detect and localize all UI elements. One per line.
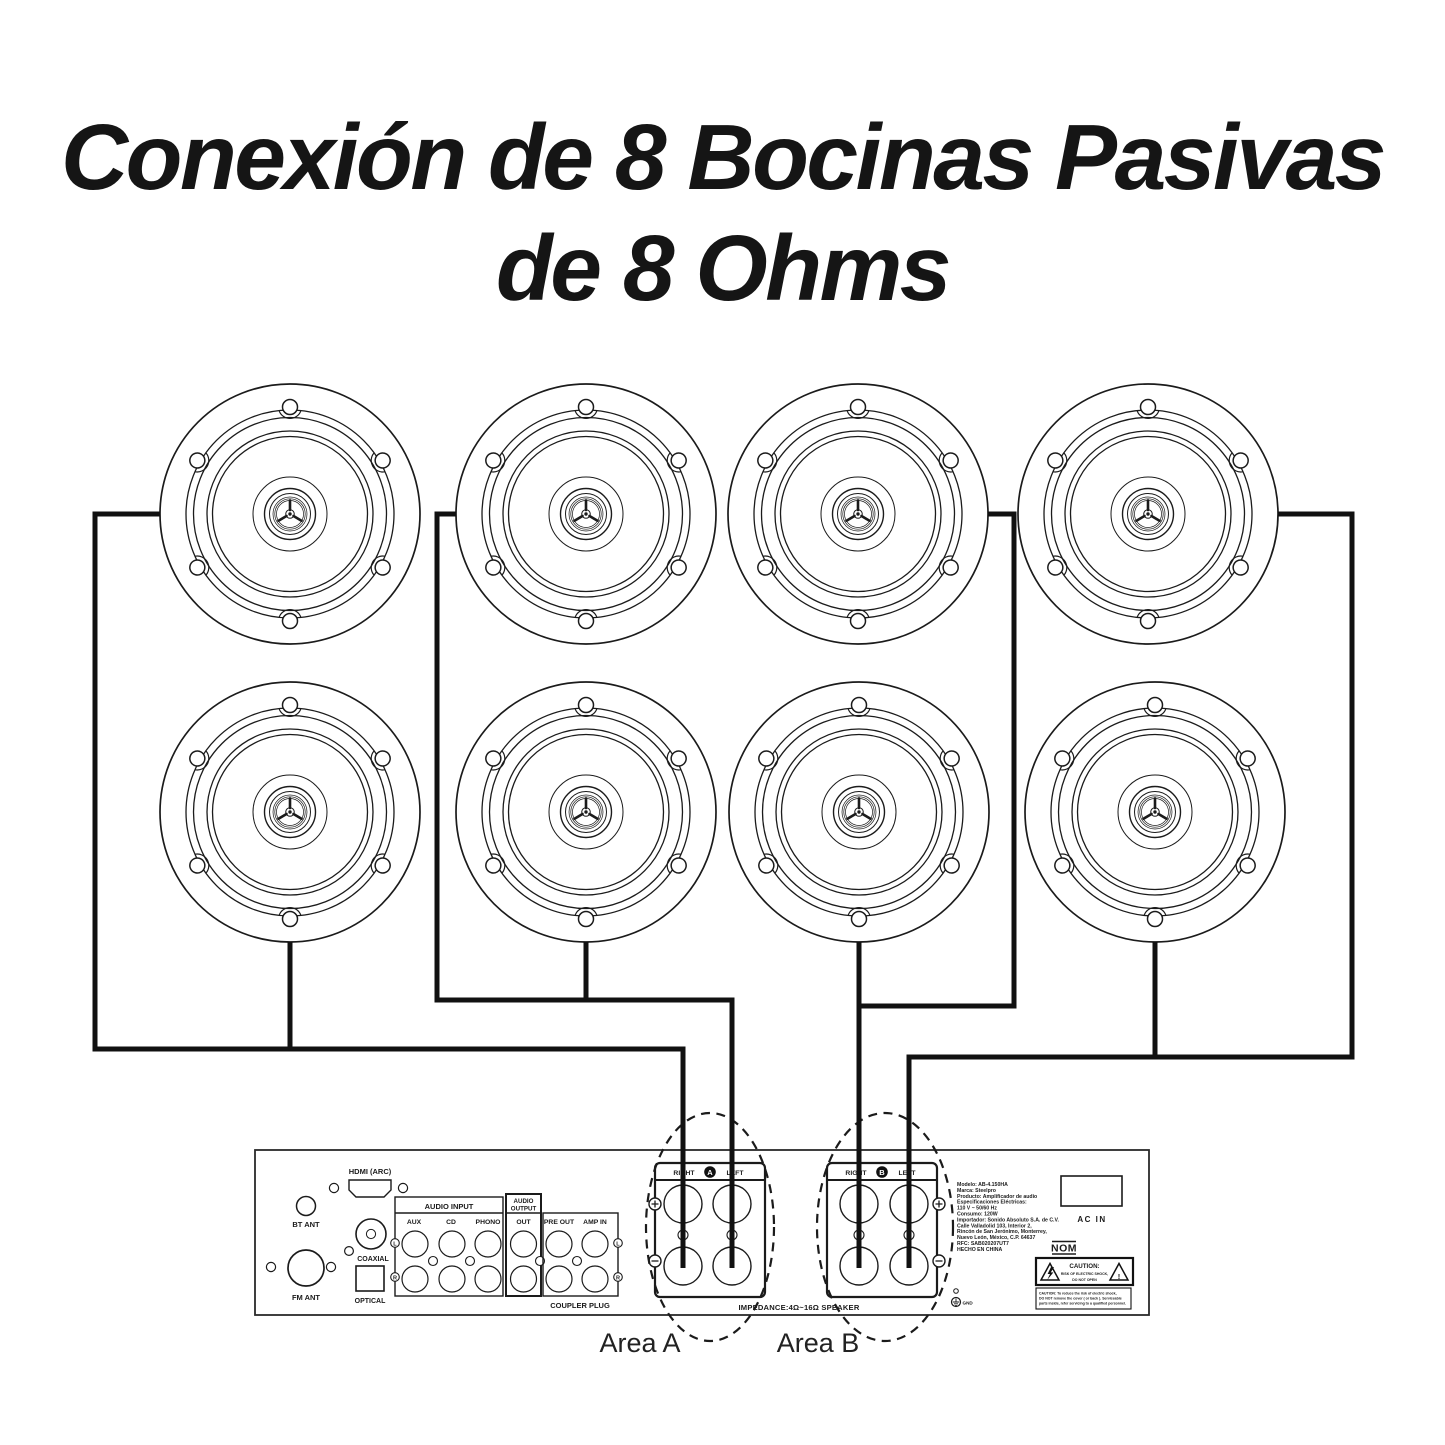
hdmi-screw-right-icon <box>398 1183 407 1192</box>
area-a-label: Area A <box>599 1328 680 1358</box>
ac-in-label: AC IN <box>1077 1215 1106 1224</box>
hdmi-label: HDMI (ARC) <box>349 1167 392 1176</box>
caution-note-line: parts inside, refer servicing to a quali… <box>1039 1302 1126 1306</box>
rca-jack-icon <box>439 1231 465 1257</box>
exclamation-mark: ! <box>1118 1272 1121 1281</box>
caution-badge: ! CAUTION: RISK OF ELECTRIC SHOCK, DO NO… <box>1036 1258 1133 1285</box>
coaxial-label: COAXIAL <box>357 1256 389 1263</box>
amplifier-rear-panel: HDMI (ARC) BT ANT COAXIAL FM ANT OPTICAL… <box>255 1150 1149 1315</box>
speaker-2 <box>456 384 716 644</box>
rca-jack-icon <box>402 1266 428 1292</box>
gnd-label: GND <box>963 1301 974 1306</box>
caution-title: CAUTION: <box>1069 1263 1099 1270</box>
audio-output-header-bottom: OUTPUT <box>511 1206 537 1213</box>
audio-input-header: AUDIO INPUT <box>425 1202 474 1211</box>
optical-label: OPTICAL <box>355 1298 386 1305</box>
left-channel-marker: L <box>616 1241 620 1247</box>
panel-screw-icon <box>466 1257 475 1266</box>
page: { "title": { "line1": "Conexión de 8 Boc… <box>0 0 1445 1445</box>
pre-out-label: PRE OUT <box>544 1219 575 1226</box>
speaker-4 <box>1018 384 1278 644</box>
right-channel-marker: R <box>393 1275 397 1281</box>
speaker-terminal-a: RIGHT A LEFT <box>649 1163 765 1297</box>
left-channel-marker: L <box>393 1241 397 1247</box>
aux-label: AUX <box>407 1219 422 1226</box>
caution-note: CAUTION: To reduce the risk of electric … <box>1036 1288 1131 1309</box>
terminal-a-left-label: LEFT <box>727 1170 745 1177</box>
cd-label: CD <box>446 1219 456 1226</box>
speaker-8 <box>1025 682 1285 942</box>
rca-jack-icon <box>475 1266 501 1292</box>
bt-ant-label: BT ANT <box>292 1220 320 1229</box>
rca-jack-icon <box>475 1231 501 1257</box>
zone-b-letter: B <box>879 1168 885 1177</box>
fm-ant-label: FM ANT <box>292 1293 320 1302</box>
right-channel-marker: R <box>616 1275 620 1281</box>
zone-a-letter: A <box>707 1168 713 1177</box>
fm-screw-left-icon <box>266 1262 275 1271</box>
fm-screw-right-icon <box>326 1262 335 1271</box>
rca-jack-icon <box>511 1266 537 1292</box>
speaker-7 <box>729 682 989 942</box>
out-label: OUT <box>516 1219 531 1226</box>
caution-line-2: DO NOT OPEN <box>1072 1278 1097 1282</box>
nom-logo: NOM <box>1051 1242 1077 1255</box>
rca-jack-icon <box>582 1231 608 1257</box>
rca-jack-icon <box>511 1231 537 1257</box>
optical-port-icon <box>356 1266 384 1291</box>
terminal-b-right-label: RIGHT <box>845 1170 867 1177</box>
fm-antenna-port-icon <box>288 1250 324 1286</box>
audio-output-header-top: AUDIO <box>514 1198 534 1205</box>
rca-jack-icon <box>402 1231 428 1257</box>
hdmi-port-icon <box>349 1180 391 1197</box>
panel-screw-icon <box>429 1257 438 1266</box>
panel-screw-icon <box>573 1257 582 1266</box>
wiring-diagram: HDMI (ARC) BT ANT COAXIAL FM ANT OPTICAL… <box>0 0 1445 1445</box>
coaxial-screw-icon <box>345 1247 354 1256</box>
rca-jack-icon <box>439 1266 465 1292</box>
speaker-5 <box>160 682 420 942</box>
speaker-6 <box>456 682 716 942</box>
caution-line-1: RISK OF ELECTRIC SHOCK, <box>1061 1272 1108 1276</box>
phono-label: PHONO <box>476 1219 501 1226</box>
speaker-terminal-b: RIGHT B LEFT <box>827 1163 945 1297</box>
coaxial-port-icon <box>356 1219 386 1249</box>
hdmi-screw-left-icon <box>329 1183 338 1192</box>
rca-jack-icon <box>546 1231 572 1257</box>
area-b-label: Area B <box>777 1328 860 1358</box>
caution-note-line: DO NOT remove the cover ( or back ). Ser… <box>1039 1297 1122 1301</box>
rca-jack-icon <box>546 1266 572 1292</box>
speaker-1 <box>160 384 420 644</box>
nom-text: NOM <box>1051 1243 1077 1255</box>
bt-antenna-port-icon <box>297 1197 316 1216</box>
product-info-line: HECHO EN CHINA <box>957 1247 1003 1253</box>
speaker-3 <box>728 384 988 644</box>
coupler-plug-label: COUPLER PLUG <box>550 1301 610 1310</box>
rca-jack-icon <box>582 1266 608 1292</box>
amp-in-label: AMP IN <box>583 1219 607 1226</box>
caution-note-line: CAUTION: To reduce the risk of electric … <box>1039 1292 1117 1296</box>
